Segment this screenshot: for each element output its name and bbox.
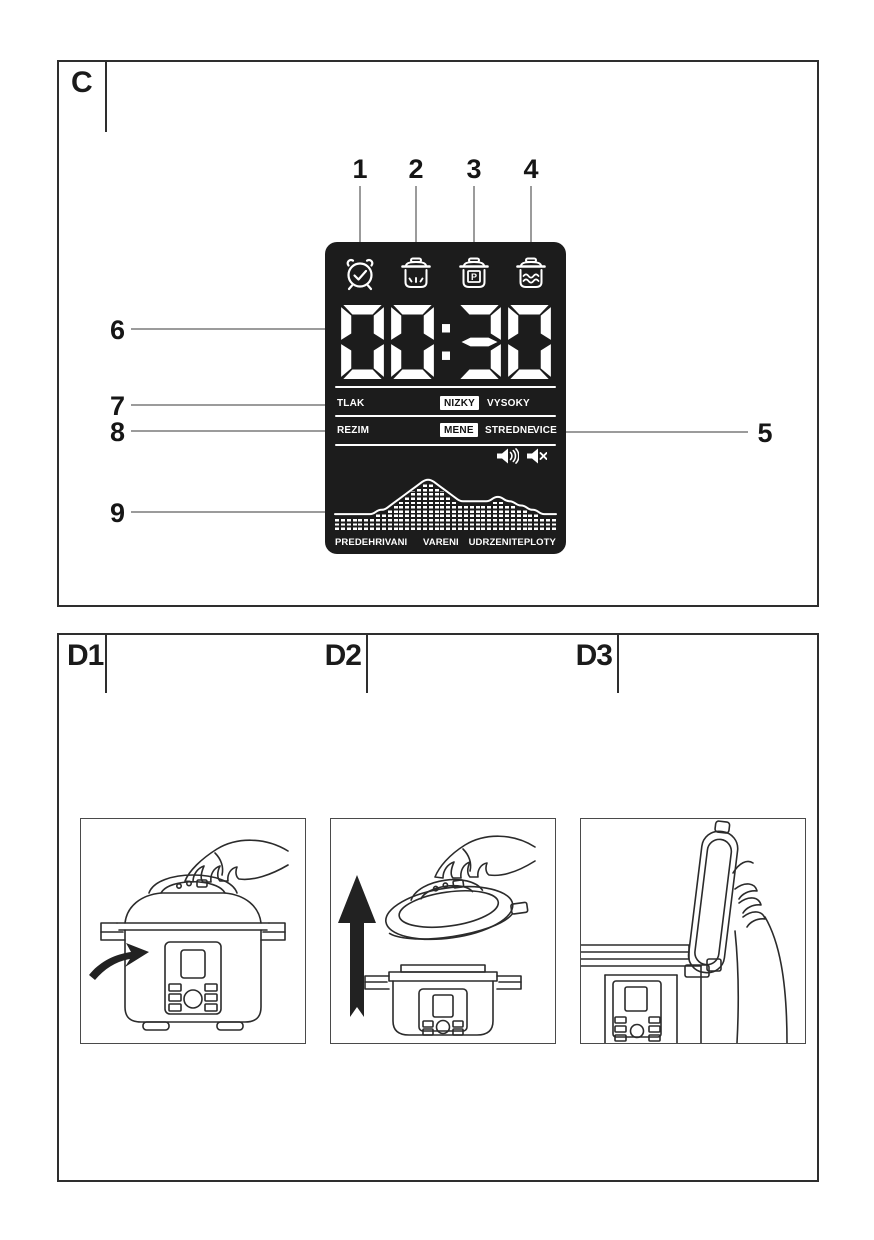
pressure-label: TLAK — [337, 398, 364, 409]
callout-4: 4 — [521, 154, 541, 185]
illustration-d1-rotate-lid — [80, 818, 306, 1044]
pressure-selected-value: NIZKY — [440, 396, 479, 410]
callout-3: 3 — [464, 154, 484, 185]
callout-8: 8 — [87, 417, 125, 448]
up-arrow — [338, 875, 376, 1017]
leader-line-6 — [131, 328, 325, 330]
time-digit — [507, 304, 552, 380]
callout-5: 5 — [753, 418, 777, 449]
panel-d3-divider — [617, 635, 619, 693]
phase-keepwarm-label: UDRZENITEPLOTY — [469, 537, 556, 548]
display-time — [325, 304, 566, 380]
pot-pressure-program-icon: P — [456, 256, 492, 292]
panel-c-display-diagram: C 1 2 3 4 6 7 8 9 5 — [57, 60, 819, 607]
panel-d2-divider — [366, 635, 368, 693]
hand-on-lid — [435, 836, 535, 878]
panel-c-label: C — [71, 66, 92, 100]
panel-d2-label: D2 — [319, 639, 361, 673]
leader-line-1 — [359, 186, 361, 242]
cooker-display: P TLAK NIZKY VYSOKY REZIM MENE STREDNE — [325, 242, 566, 554]
panel-d3-label: D3 — [570, 639, 612, 673]
leader-line-3 — [473, 186, 475, 242]
leader-line-7 — [131, 404, 325, 406]
callout-6: 6 — [87, 315, 125, 346]
pot-steam-icon — [513, 256, 549, 292]
mode-option-more: VICE — [533, 425, 557, 436]
manual-page: { "panel_c": { "label": "C", "callouts":… — [0, 0, 874, 1240]
time-digit — [457, 304, 502, 380]
phase-graph-curve — [335, 462, 556, 530]
alarm-clock-timer-icon — [342, 256, 378, 292]
phase-preheat-label: PREDEHRIVANI — [335, 537, 407, 548]
panel-d-lid-steps: D1 D2 D3 — [57, 633, 819, 1182]
phase-cook-label: VARENI — [423, 537, 459, 548]
panel-d1-divider — [105, 635, 107, 693]
pot-keep-warm-icon — [398, 256, 434, 292]
time-digit — [390, 304, 435, 380]
pressure-row: TLAK NIZKY VYSOKY — [337, 396, 557, 412]
phase-labels: PREDEHRIVANI VARENI UDRZENITEPLOTY — [335, 537, 556, 549]
time-digit — [340, 304, 385, 380]
illustration-d3-open-lid — [580, 818, 806, 1044]
display-separator — [335, 444, 556, 446]
mode-label: REZIM — [337, 425, 369, 436]
leader-line-2 — [415, 186, 417, 242]
panel-c-label-divider — [105, 62, 107, 132]
leader-line-9 — [131, 511, 325, 513]
callout-9: 9 — [87, 498, 125, 529]
leader-line-8 — [131, 430, 325, 432]
leader-line-5 — [566, 431, 748, 433]
panel-d1-label: D1 — [67, 639, 103, 673]
illustration-d2-lift-lid — [330, 818, 556, 1044]
mode-selected-value: MENE — [440, 423, 478, 437]
display-separator — [335, 415, 556, 417]
mode-row: REZIM MENE STREDNE VICE — [337, 423, 557, 439]
display-separator — [335, 386, 556, 388]
mode-option-medium: STREDNE — [485, 425, 534, 436]
leader-line-4 — [530, 186, 532, 242]
pressure-p-letter: P — [471, 272, 477, 282]
callout-2: 2 — [406, 154, 426, 185]
rotate-arrow — [89, 943, 149, 980]
time-colon — [440, 304, 452, 380]
pressure-option-high: VYSOKY — [487, 398, 530, 409]
callout-1: 1 — [350, 154, 370, 185]
